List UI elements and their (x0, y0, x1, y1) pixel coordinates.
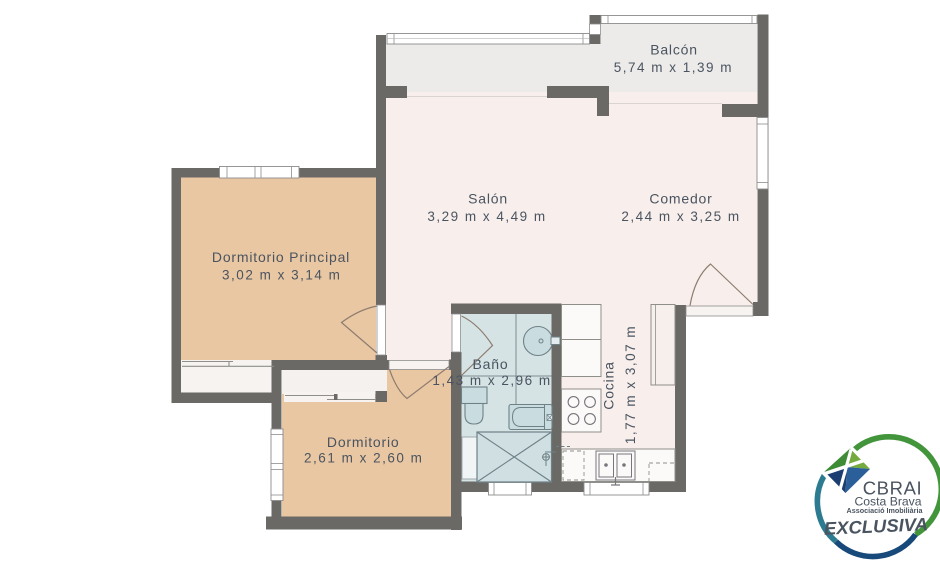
svg-text:Salón: Salón (468, 191, 508, 207)
svg-text:Associació Imobiliària: Associació Imobiliària (847, 506, 924, 515)
svg-text:1,77 m x 3,07 m: 1,77 m x 3,07 m (623, 325, 638, 444)
svg-text:Dormitorio Principal: Dormitorio Principal (212, 249, 350, 265)
svg-text:Balcón: Balcón (650, 42, 698, 58)
svg-text:2,61 m x 2,60 m: 2,61 m x 2,60 m (304, 451, 423, 466)
svg-text:3,02 m x 3,14 m: 3,02 m x 3,14 m (222, 268, 341, 283)
svg-text:2,44 m x 3,25 m: 2,44 m x 3,25 m (621, 209, 740, 224)
svg-text:5,74 m x 1,39 m: 5,74 m x 1,39 m (614, 60, 733, 75)
svg-text:Comedor: Comedor (649, 191, 712, 207)
svg-text:Dormitorio: Dormitorio (327, 434, 400, 450)
svg-text:1,43 m x 2,96 m: 1,43 m x 2,96 m (432, 373, 551, 388)
svg-text:3,29 m x 4,49 m: 3,29 m x 4,49 m (427, 209, 546, 224)
svg-text:Baño: Baño (473, 356, 509, 372)
svg-text:Cocina: Cocina (601, 361, 617, 409)
